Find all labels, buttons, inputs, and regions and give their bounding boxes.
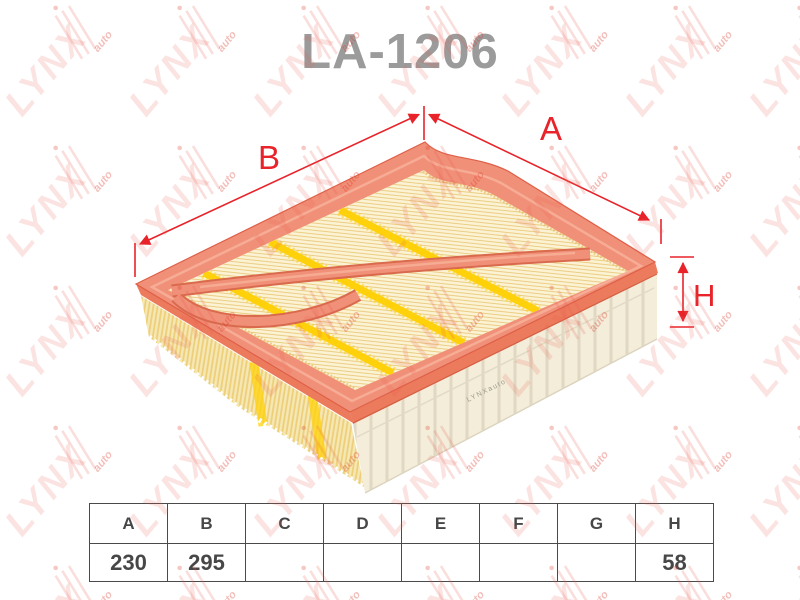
table-header-row: A B C D E F G H — [90, 504, 714, 544]
spec-header-cell: A — [90, 504, 168, 544]
spec-value-cell — [246, 544, 324, 582]
table-value-row: 230 295 58 — [90, 544, 714, 582]
spec-value-cell: 295 — [168, 544, 246, 582]
dimension-table: A B C D E F G H 230 295 58 — [89, 503, 714, 582]
label-h: H — [693, 278, 715, 313]
spec-value-cell — [324, 544, 402, 582]
label-a: A — [540, 110, 562, 147]
spec-value-cell: 230 — [90, 544, 168, 582]
spec-header-cell: E — [402, 504, 480, 544]
product-card: LA-1206 — [0, 0, 800, 600]
spec-header-cell: C — [246, 504, 324, 544]
spec-value-cell — [558, 544, 636, 582]
spec-header-cell: F — [480, 504, 558, 544]
spec-header-cell: D — [324, 504, 402, 544]
spec-header-cell: B — [168, 504, 246, 544]
spec-value-cell — [480, 544, 558, 582]
spec-header-cell: H — [636, 504, 714, 544]
spec-header-cell: G — [558, 504, 636, 544]
label-b: B — [258, 139, 280, 176]
spec-value-cell: 58 — [636, 544, 714, 582]
spec-value-cell — [402, 544, 480, 582]
